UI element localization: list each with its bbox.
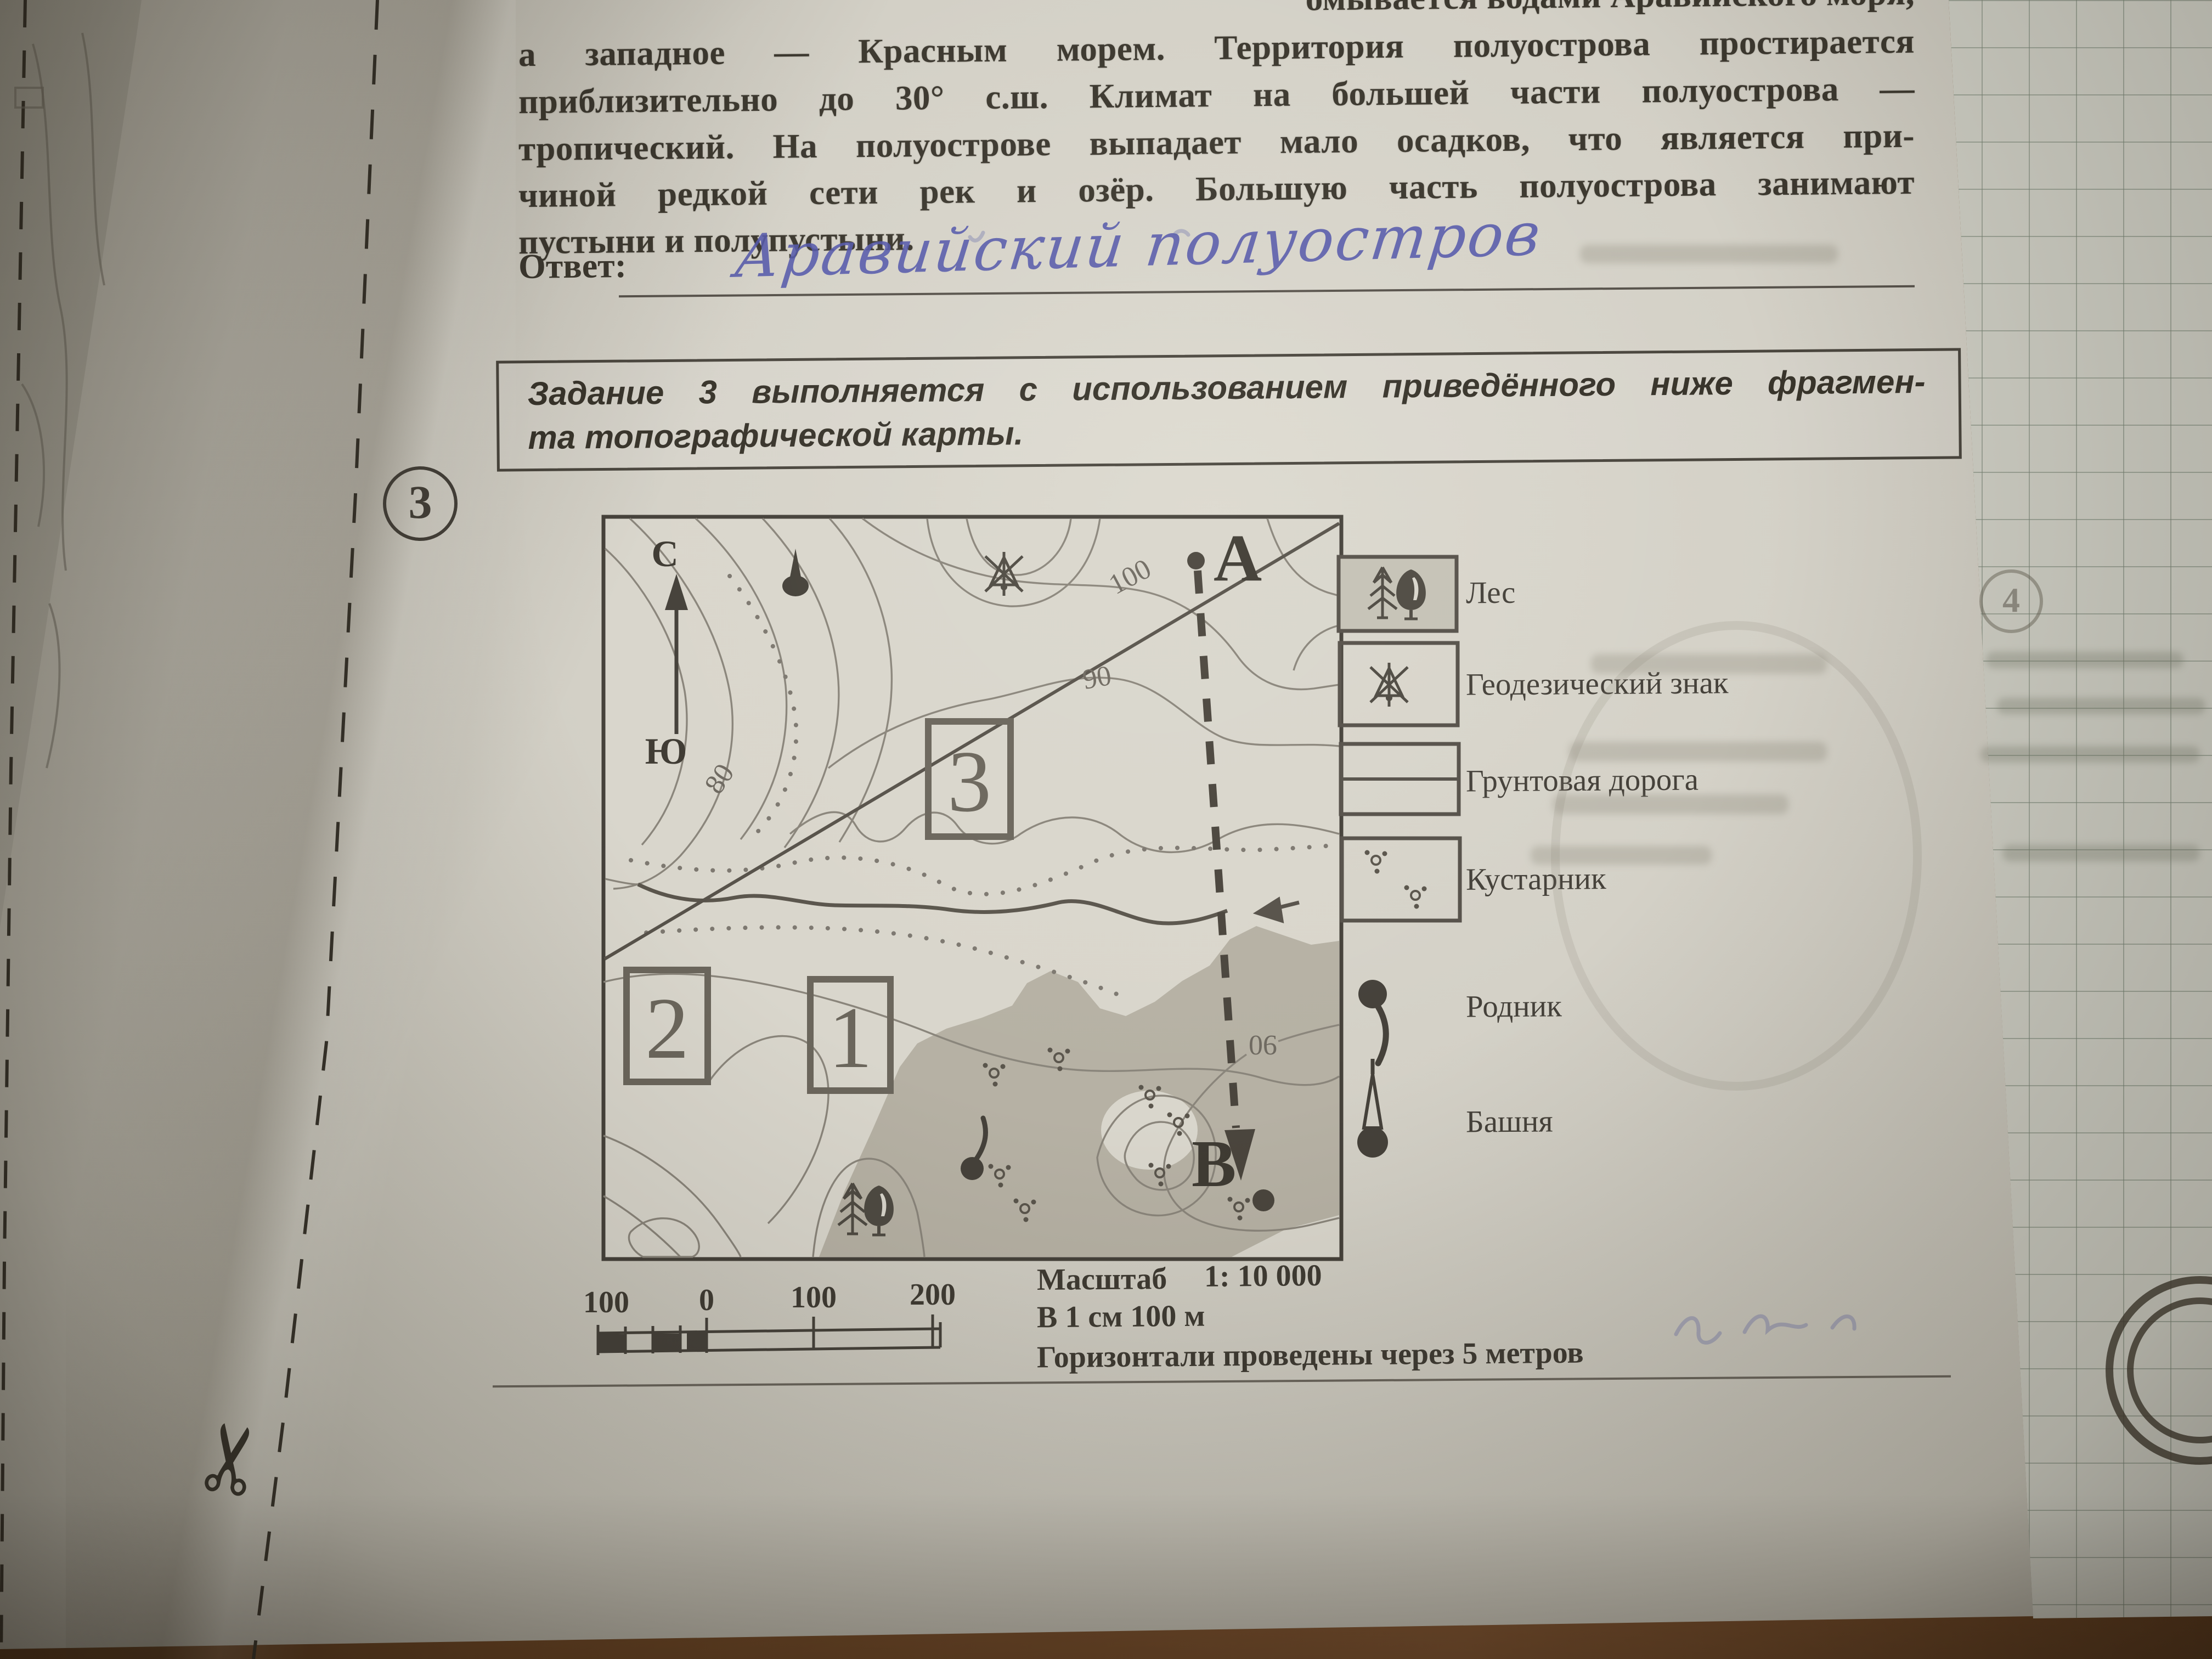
legend-geodetic-sign-icon [1370, 663, 1408, 707]
point-a-label: А [1214, 521, 1262, 595]
legend-shrub-icon [1365, 850, 1387, 874]
contour-label-90: 90 [1080, 660, 1114, 696]
map-legend [1339, 557, 1460, 1158]
point-a-dot [1187, 552, 1205, 569]
topographic-map: С Ю 3 2 1 100 90 80 90 [603, 517, 1341, 1259]
scale-bar-label: 100 [583, 1285, 629, 1319]
notebook-ring-mark [2109, 1280, 2212, 1461]
cut-marks: ✂ ✂ [0, 0, 377, 1659]
legend-box-geodetic [1340, 643, 1458, 725]
bleed-ring [1555, 625, 1917, 1086]
point-b-dot [1252, 1189, 1274, 1211]
cut-dashed-line-left [1, 0, 25, 1659]
legend-box-shrub [1342, 838, 1460, 921]
site-label-2: 2 [645, 979, 689, 1077]
legend-spring-icon [1358, 980, 1387, 1063]
legend-tower-icon [1357, 1059, 1388, 1158]
scale-bar: 100 0 100 200 [583, 1278, 956, 1355]
scale-bar-label: 100 [791, 1280, 837, 1314]
map-label-south: Ю [645, 730, 687, 772]
scale-bar-label: 0 [699, 1283, 714, 1317]
site-label-1: 1 [828, 989, 872, 1086]
old-page-map-doodles [15, 33, 104, 768]
scale-bar-label: 200 [910, 1278, 956, 1312]
point-b-label: В [1192, 1127, 1236, 1201]
cut-dashed-line [253, 0, 377, 1659]
map-label-north: С [651, 533, 678, 574]
contour-label-90-rotated: 90 [1249, 1029, 1277, 1060]
scissors-icon: ✂ [175, 1412, 290, 1506]
vector-overlay: С Ю 3 2 1 100 90 80 90 [0, 0, 2212, 1659]
site-label-3: 3 [947, 732, 991, 830]
